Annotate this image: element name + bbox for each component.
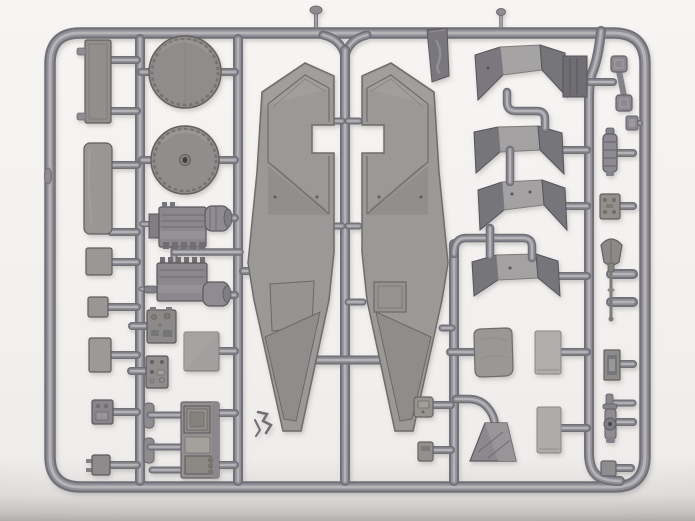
square-plate-3 xyxy=(89,338,111,372)
small-box-part-1 xyxy=(414,397,433,417)
flat-rect-plate-2 xyxy=(537,407,561,453)
shield-door-plate xyxy=(474,328,513,377)
engine-block-half-1 xyxy=(149,202,232,249)
small-cube-part xyxy=(601,461,616,476)
fender-part-3 xyxy=(478,180,567,230)
tall-panel-plate-1 xyxy=(77,40,111,123)
ribbed-cylinder-part xyxy=(603,128,617,176)
fender-part-4 xyxy=(472,254,560,296)
hull-side-panel-left xyxy=(248,63,334,431)
riveted-detail-plate xyxy=(147,307,176,343)
wheel-disc-1 xyxy=(149,36,221,108)
clip-part xyxy=(626,116,638,130)
sprue-parts-tree xyxy=(45,6,646,487)
wheel-disc-2 xyxy=(151,126,219,194)
holes-detail-plate xyxy=(146,356,168,388)
square-plate-1 xyxy=(86,248,112,275)
detail-box-part xyxy=(92,400,113,424)
sprue-id-tag xyxy=(427,28,449,82)
square-plate-2 xyxy=(88,297,108,317)
fender-part-1 xyxy=(475,45,587,100)
fender-elbow-pipes xyxy=(454,92,545,258)
hull-side-panel-right xyxy=(362,63,448,431)
bolt-plate-part xyxy=(600,194,620,219)
pin-box-part xyxy=(86,455,110,475)
engine-block-half-2 xyxy=(144,257,231,306)
flat-square-plate xyxy=(184,332,219,371)
air-scoop-part xyxy=(470,423,516,461)
sprue-photo-stage xyxy=(0,0,695,521)
tiny-bracket-parts xyxy=(255,412,271,436)
flat-rect-plate-1 xyxy=(535,331,561,374)
frame-hatch-part xyxy=(604,350,620,380)
small-box-part-2 xyxy=(418,442,433,461)
scoop-intake-pipe xyxy=(456,399,495,425)
tall-panel-plate-2 xyxy=(84,143,112,234)
hatch-panel-assembly xyxy=(144,402,219,478)
sprue-photo xyxy=(0,0,695,521)
shovel-part xyxy=(601,239,622,322)
fender-part-2 xyxy=(474,126,564,174)
